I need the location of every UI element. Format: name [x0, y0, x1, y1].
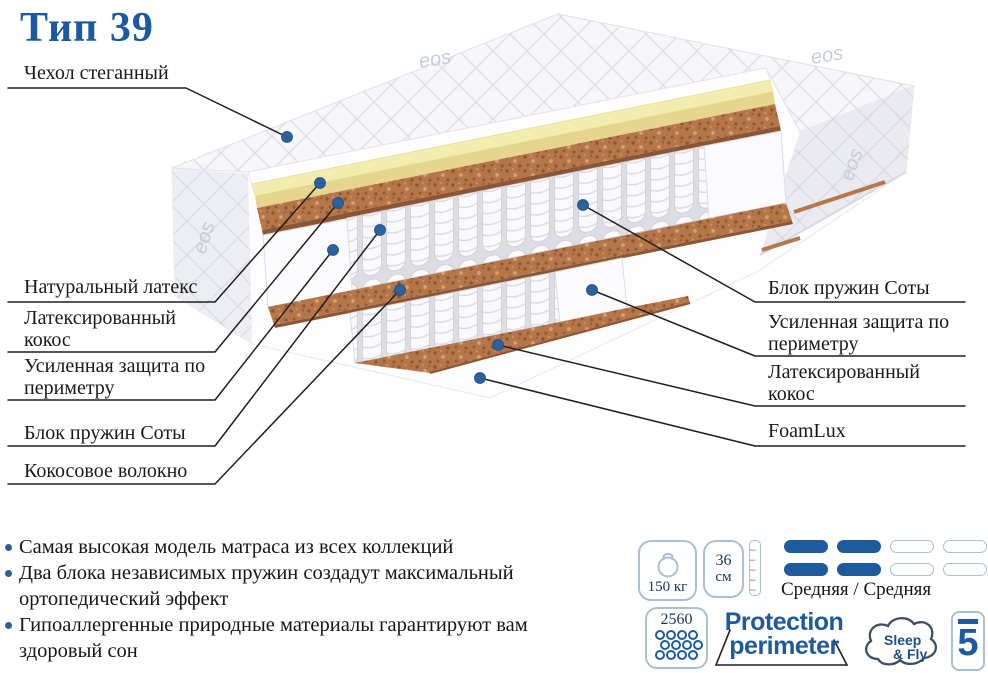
brand-line2: & Fly: [893, 646, 927, 662]
page-title: Тип 39: [20, 4, 154, 52]
firmness-pill: [890, 563, 934, 576]
firmness-pill: [890, 540, 934, 553]
height-unit: см: [715, 570, 731, 585]
height-value: 36: [716, 553, 732, 569]
dot-middle-coir: [395, 285, 406, 296]
firmness-indicator: [784, 540, 988, 576]
dot-springs-right: [578, 200, 589, 211]
dot-cover: [282, 132, 293, 143]
sleep-and-fly-logo: Sleep & Fly: [860, 613, 942, 671]
max-weight-badge: 150 кг: [638, 540, 697, 601]
dot-bottom-coir: [493, 340, 504, 351]
perimeter-foam-right: [704, 131, 786, 218]
label-latex: Натуральный латекс: [24, 276, 249, 298]
dot-perimeter-left: [328, 245, 339, 256]
label-springs-right: Блок пружин Соты: [768, 277, 983, 299]
callout-cover: [8, 88, 287, 137]
label-springs-left: Блок пружин Соты: [24, 422, 249, 444]
label-bottom-coir: Латексированный кокос: [768, 361, 968, 405]
feature-list: Самая высокая модель матраса из всех кол…: [2, 534, 577, 664]
protection-perimeter-logo: Protection perimeter: [695, 610, 873, 658]
firmness-pill: [837, 563, 881, 576]
dot-foamlux: [475, 373, 486, 384]
firmness-pill: [784, 540, 828, 553]
label-foamlux: FoamLux: [768, 420, 983, 442]
label-perimeter-right: Усиленная защита по периметру: [768, 311, 968, 355]
dot-perimeter-right: [587, 285, 598, 296]
kettlebell-icon: [654, 552, 682, 578]
eos-logo-watermark: eos: [809, 42, 844, 69]
firmness-pill: [943, 540, 987, 553]
dot-springs-left: [375, 225, 386, 236]
warranty-years: 5: [957, 625, 978, 661]
ruler-icon: [749, 540, 761, 596]
firmness-pill: [784, 563, 828, 576]
label-middle-coir: Кокосовое волокно: [24, 460, 249, 482]
max-weight-value: 150 кг: [648, 579, 688, 596]
protection-line1: Protection: [695, 610, 873, 634]
height-badge: 36 см: [703, 540, 744, 598]
springs-count-value: 2560: [661, 611, 693, 629]
dot-upper-coir: [333, 198, 344, 209]
protection-line2: perimeter: [695, 634, 873, 658]
label-cover: Чехол стеганный: [24, 62, 249, 84]
warranty-badge: 5: [951, 611, 985, 671]
feature-item: Два блока независимых пружин создадут ма…: [2, 560, 577, 612]
firmness-pill: [837, 540, 881, 553]
infographic-page: eos eos eos eos: [0, 0, 988, 673]
firmness-pill: [943, 563, 987, 576]
label-perimeter-left: Усиленная защита по периметру: [24, 355, 224, 399]
label-upper-coir: Латексированный кокос: [24, 307, 224, 351]
firmness-label: Средняя / Средняя: [781, 579, 931, 601]
dot-latex: [315, 178, 326, 189]
cloud-icon: Sleep & Fly: [860, 613, 942, 671]
feature-item: Гипоаллергенные природные материалы гара…: [2, 612, 577, 664]
feature-item: Самая высокая модель матраса из всех кол…: [2, 534, 577, 560]
